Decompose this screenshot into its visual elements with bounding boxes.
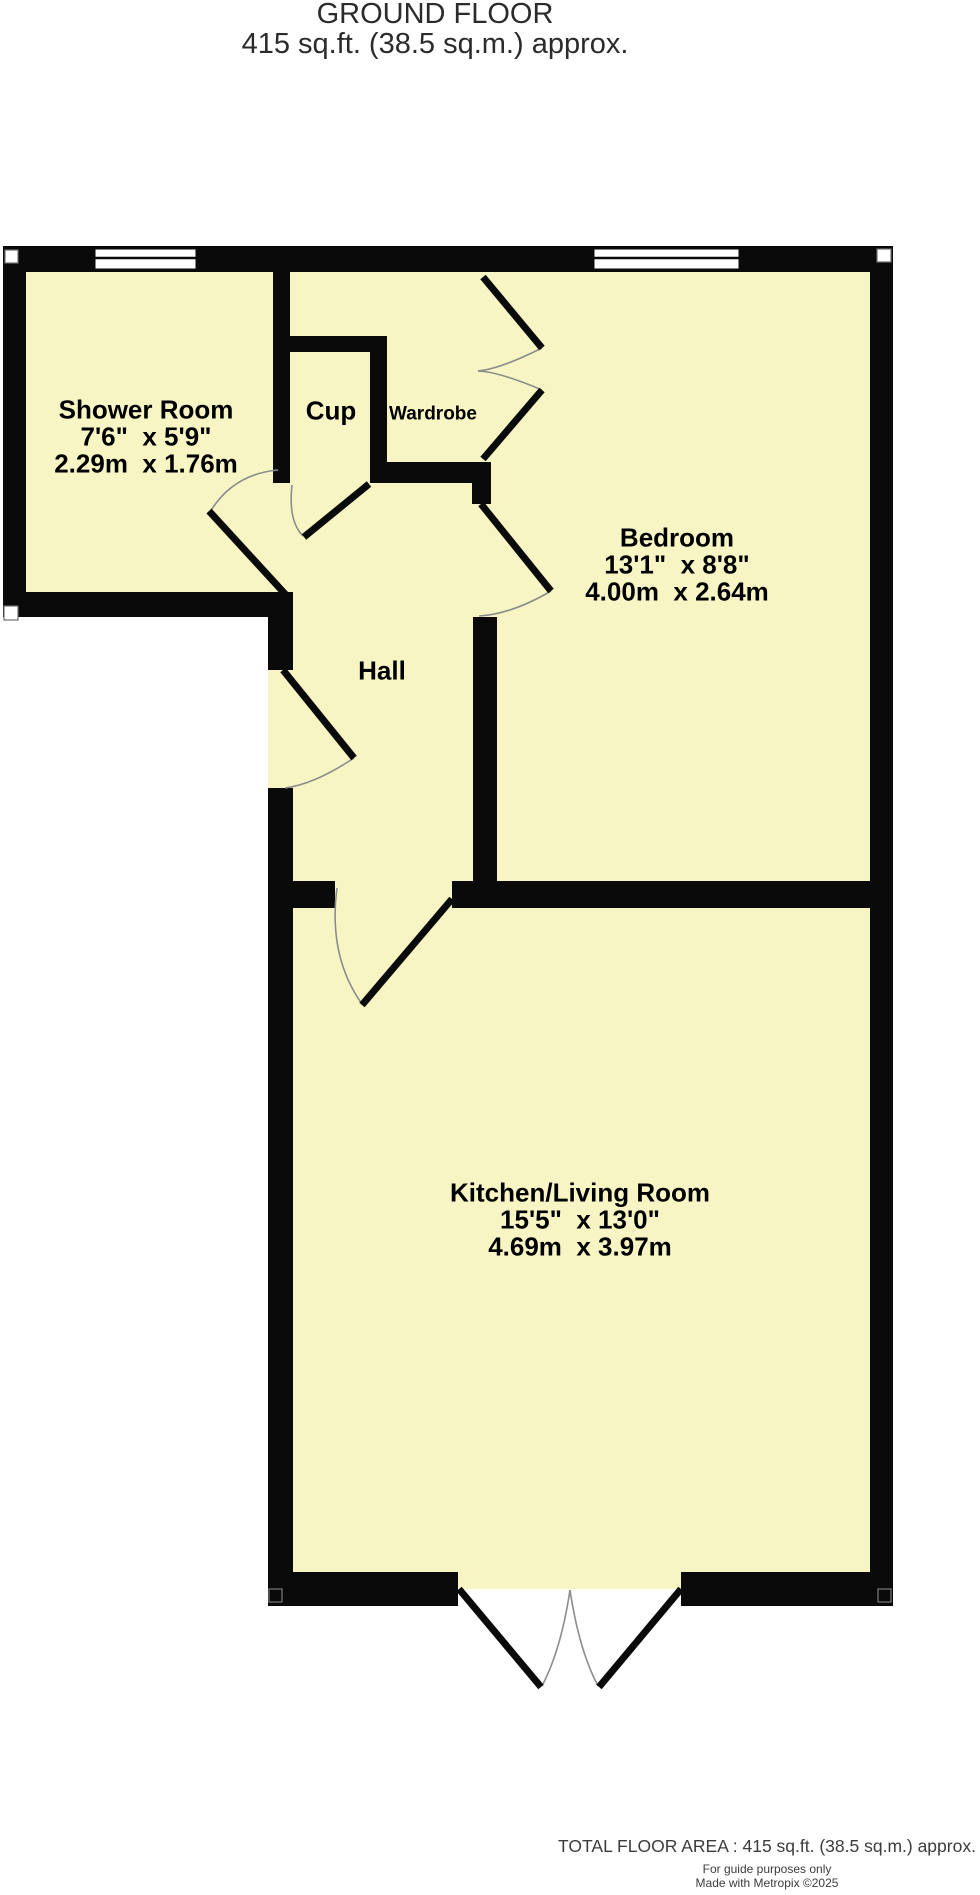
shower-room-dims-metric: 2.29m x 1.76m <box>54 451 238 478</box>
corner-mark-shower-bottom-left <box>4 606 18 620</box>
metropix-credit-text: Made with Metropix ©2025 <box>558 1876 976 1890</box>
bedroom-door-jamb-stub <box>472 483 491 504</box>
cup-name: Cup <box>306 398 357 425</box>
bedroom-name: Bedroom <box>585 525 769 552</box>
bedroom-kitchen-divider-wall <box>452 881 893 908</box>
room-label-cup: Cup <box>306 398 357 425</box>
corner-mark-top-right <box>877 249 891 262</box>
room-label-kitchen-living-room: Kitchen/Living Room 15'5" x 13'0" 4.69m … <box>450 1180 710 1261</box>
hall-bottom-wall <box>268 881 335 908</box>
guide-purposes-text: For guide purposes only <box>558 1862 976 1876</box>
kitchen-bottom-wall-right <box>681 1572 893 1606</box>
kitchen-bottom-wall-left <box>268 1572 458 1606</box>
hall-name: Hall <box>358 658 406 685</box>
footer-block: TOTAL FLOOR AREA : 415 sq.ft. (38.5 sq.m… <box>558 1835 976 1890</box>
total-floor-area-text: TOTAL FLOOR AREA : 415 sq.ft. (38.5 sq.m… <box>558 1835 976 1857</box>
shower-room-dims-imperial: 7'6" x 5'9" <box>54 424 238 451</box>
cup-right-wall <box>370 350 387 483</box>
cup-top-wall <box>290 336 387 352</box>
room-label-wardrobe: Wardrobe <box>389 401 477 428</box>
room-label-hall: Hall <box>358 658 406 685</box>
hall-left-wall-upper <box>268 592 293 670</box>
floorplan-drawing <box>0 0 980 1895</box>
kitchen-living-room-dims-metric: 4.69m x 3.97m <box>450 1234 710 1261</box>
bedroom-dims-metric: 4.00m x 2.64m <box>585 579 769 606</box>
kitchen-living-room-dims-imperial: 15'5" x 13'0" <box>450 1207 710 1234</box>
room-label-shower-room: Shower Room 7'6" x 5'9" 2.29m x 1.76m <box>54 397 238 478</box>
exterior-wall-left <box>3 246 26 617</box>
wardrobe-bottom-wall <box>387 462 491 483</box>
floorplan-page: GROUND FLOOR 415 sq.ft. (38.5 sq.m.) app… <box>0 0 980 1895</box>
room-label-bedroom: Bedroom 13'1" x 8'8" 4.00m x 2.64m <box>585 525 769 606</box>
corner-mark-top-left <box>5 250 18 263</box>
shower-room-name: Shower Room <box>54 397 238 424</box>
kitchen-left-wall <box>268 880 293 1606</box>
shower-room-bottom-wall <box>3 592 293 617</box>
hall-bedroom-divider-wall <box>473 617 497 881</box>
exterior-wall-right <box>870 246 893 1606</box>
bedroom-dims-imperial: 13'1" x 8'8" <box>585 552 769 579</box>
wardrobe-name: Wardrobe <box>389 401 477 428</box>
shower-cup-divider-wall <box>273 272 290 483</box>
kitchen-living-room-name: Kitchen/Living Room <box>450 1180 710 1207</box>
